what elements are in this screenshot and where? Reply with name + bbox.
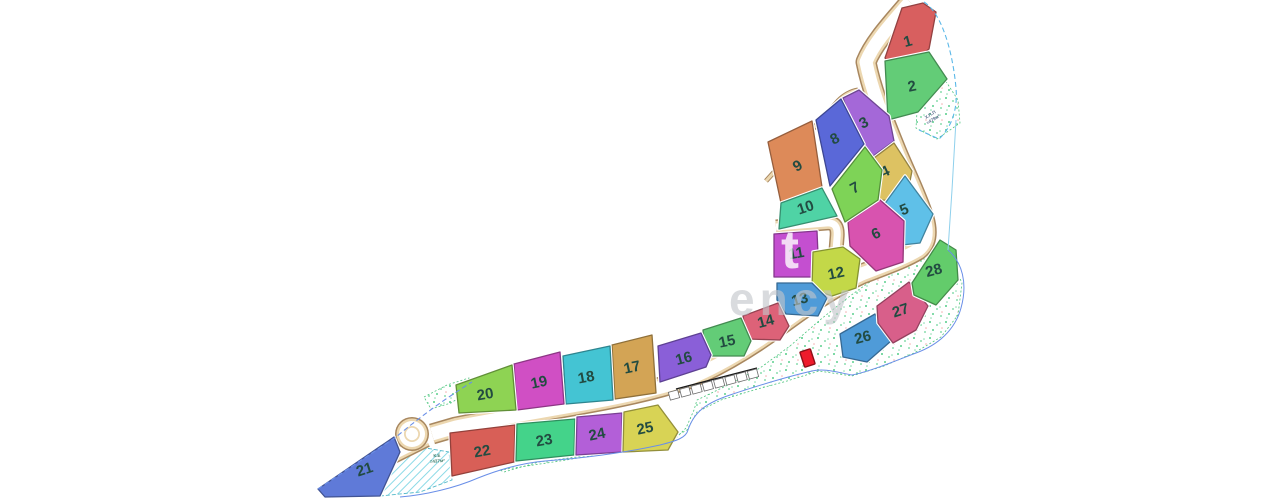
lot-18: 18	[563, 346, 613, 404]
lot-number-17: 17	[622, 358, 642, 378]
lot-number-25: 25	[635, 419, 655, 439]
lot-17: 17	[612, 335, 656, 399]
lot-number-15: 15	[717, 332, 737, 352]
lot-23: 23	[516, 419, 575, 461]
lot-24: 24	[576, 413, 622, 455]
lot-number-23: 23	[535, 431, 554, 451]
lot-number-22: 22	[473, 442, 492, 462]
lot-number-19: 19	[529, 373, 549, 393]
watermark-fragment-2: ency	[729, 273, 854, 325]
lot-25: 25	[623, 405, 678, 452]
lot-number-20: 20	[476, 385, 495, 405]
site-plan-svg: 1234567891011121314151617181920212223242…	[0, 0, 1280, 501]
watermark-fragment-1: t	[781, 220, 799, 280]
lot-19: 19	[514, 352, 564, 410]
roundabout-island	[406, 428, 418, 440]
lot-number-18: 18	[577, 368, 596, 388]
lot-20: 20	[456, 365, 516, 413]
boundary-right	[948, 120, 956, 250]
site-plan: 1234567891011121314151617181920212223242…	[0, 0, 1280, 501]
